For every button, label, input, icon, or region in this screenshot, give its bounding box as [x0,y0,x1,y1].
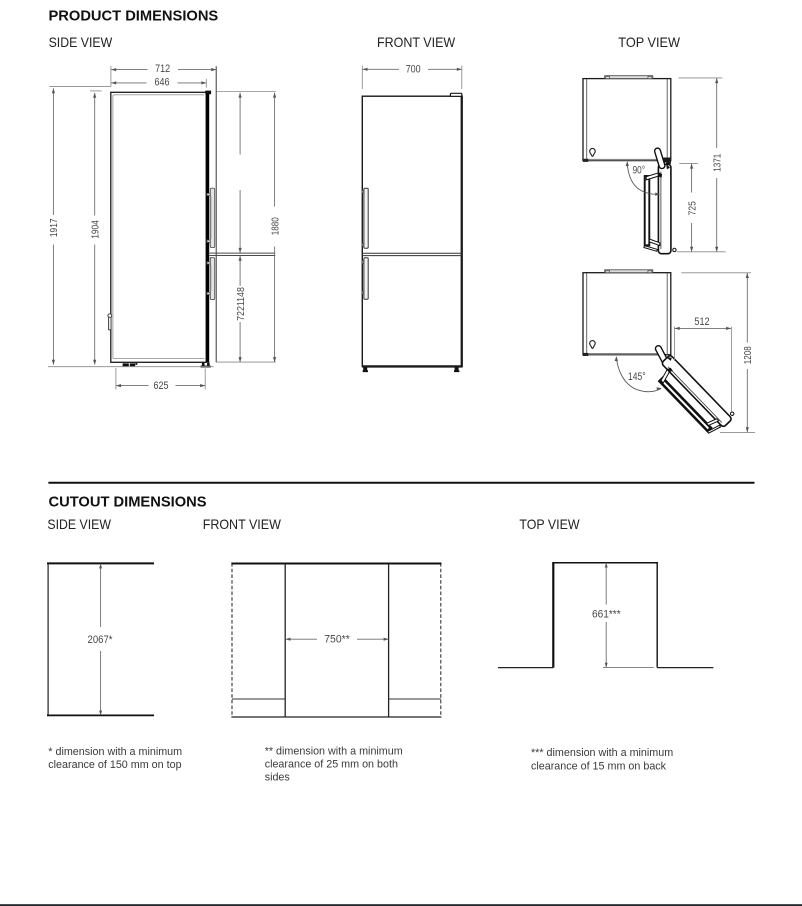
svg-text:646: 646 [155,77,170,89]
svg-text:7221148: 7221148 [236,287,247,321]
svg-text:SIDE VIEW: SIDE VIEW [47,517,111,532]
svg-text:625: 625 [154,380,169,392]
svg-text:** dimension with a minimum: ** dimension with a minimum [265,746,403,758]
svg-text:clearance of 25 mm on both: clearance of 25 mm on both [265,759,398,771]
svg-text:FRONT VIEW: FRONT VIEW [203,517,281,532]
svg-text:725: 725 [687,201,698,216]
svg-text:* dimension with a minimum: * dimension with a minimum [48,746,182,758]
svg-text:*** dimension with a minimum: *** dimension with a minimum [531,747,673,759]
svg-text:1880: 1880 [270,217,281,235]
svg-text:145°: 145° [628,371,646,383]
svg-text:1917: 1917 [49,219,60,238]
svg-text:1371: 1371 [712,154,723,172]
svg-text:712: 712 [155,63,170,75]
svg-text:1904: 1904 [90,220,101,239]
svg-text:1208: 1208 [743,346,754,364]
svg-text:SIDE VIEW: SIDE VIEW [49,35,113,50]
svg-text:512: 512 [694,316,709,328]
svg-text:PRODUCT DIMENSIONS: PRODUCT DIMENSIONS [49,8,219,24]
svg-text:661***: 661*** [592,609,621,621]
svg-text:FRONT VIEW: FRONT VIEW [377,35,455,50]
svg-text:TOP VIEW: TOP VIEW [618,35,680,50]
svg-text:sides: sides [265,772,290,784]
svg-text:2067*: 2067* [88,634,113,646]
svg-text:CUTOUT DIMENSIONS: CUTOUT DIMENSIONS [49,495,207,511]
svg-text:750**: 750** [324,633,350,645]
svg-text:700: 700 [406,63,421,75]
svg-text:clearance of 150 mm on top: clearance of 150 mm on top [48,759,181,771]
svg-text:TOP VIEW: TOP VIEW [519,517,579,532]
svg-text:clearance of 15 mm on back: clearance of 15 mm on back [531,761,667,773]
svg-text:90°: 90° [633,164,645,176]
